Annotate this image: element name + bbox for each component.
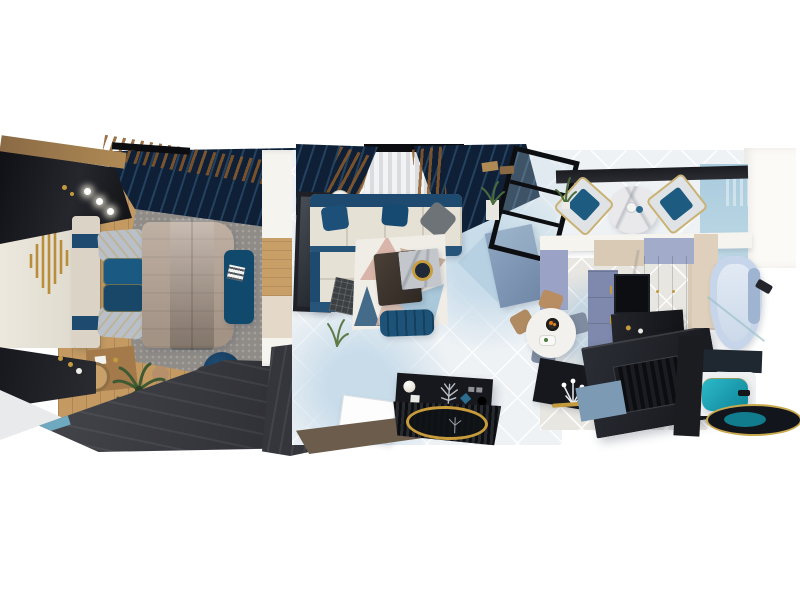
bed-foot-bench — [224, 250, 254, 324]
sprig-stems — [328, 320, 348, 346]
dining-table — [608, 186, 658, 234]
console-gold-candle — [68, 362, 73, 367]
sofa-pillow-navy — [320, 204, 349, 231]
ring-reflection-branch — [409, 408, 486, 439]
round-mirror-table — [706, 404, 800, 436]
gold-ring-mirror — [405, 405, 488, 442]
pedestal-plant-stems — [482, 182, 504, 204]
kitchen-table — [526, 308, 576, 358]
magazine-on-bench — [227, 264, 246, 281]
console-sphere-decor — [403, 380, 416, 393]
apartment-render — [0, 0, 800, 600]
dark-divider-cabinet — [673, 335, 704, 436]
gold-bowl — [412, 260, 433, 281]
navy-ottoman — [380, 309, 435, 337]
dining-plant — [554, 174, 578, 210]
branch-strokes — [440, 383, 457, 405]
flower — [571, 379, 576, 384]
tub-trim — [748, 268, 760, 324]
door-crossbar — [502, 209, 559, 227]
wardrobe-spotlight — [96, 198, 103, 205]
bed-pillow-navy — [103, 284, 145, 312]
console-gold-candle — [58, 356, 63, 361]
console-dark-dish — [477, 396, 487, 406]
headboard-navy-band — [72, 316, 100, 330]
wardrobe-spotlight — [84, 188, 91, 195]
reflection-strokes — [449, 417, 462, 433]
gold-handle — [610, 286, 612, 294]
shelf-wood-decor — [500, 166, 515, 175]
bed-pillow-silver — [97, 228, 145, 261]
plant-sprig — [324, 314, 350, 348]
rug-triangle-navy — [354, 286, 380, 326]
gold-knob — [672, 290, 675, 293]
sofa-pillow-navy — [381, 203, 409, 227]
gold-knob — [656, 290, 659, 293]
counter-white-item — [638, 328, 643, 333]
flower — [562, 383, 567, 388]
chair-navy-cushion — [659, 186, 694, 221]
kitchen-screen — [614, 274, 650, 314]
console-knob — [476, 387, 482, 392]
pedestal-plant — [480, 178, 506, 206]
bed-blue-runner — [170, 219, 214, 350]
orange-fruit — [553, 323, 556, 326]
headboard-navy-band — [72, 234, 100, 248]
dining-plant-pot — [562, 202, 570, 209]
console-blue-diamond — [460, 393, 471, 404]
wardrobe-spotlight — [107, 208, 114, 215]
counter-gold-item — [626, 325, 631, 330]
mirror-teal-reflection — [724, 412, 766, 427]
garnish — [544, 338, 548, 342]
bed-pillow-navy — [103, 258, 145, 286]
fruit-bowl — [546, 318, 559, 331]
console-white-vase — [76, 368, 82, 374]
gold-bottle-decor — [70, 192, 74, 196]
bath-counter-dark — [696, 349, 763, 373]
gold-bottle-decor — [62, 185, 67, 190]
blue-cup-decor — [636, 206, 643, 213]
bed-headboard — [72, 216, 100, 348]
console-knob — [468, 387, 474, 392]
dining-plant-stems — [556, 178, 576, 204]
silver-branch-decor — [437, 380, 461, 407]
sink-faucet — [738, 390, 750, 396]
food-plate — [539, 335, 556, 346]
